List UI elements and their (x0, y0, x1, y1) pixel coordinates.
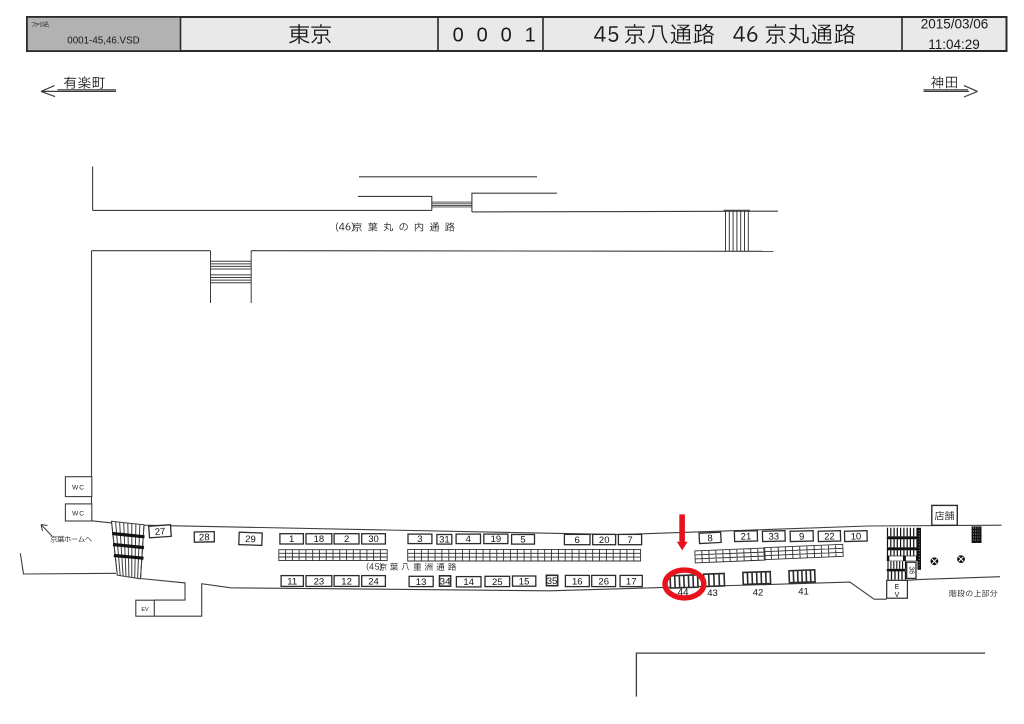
svg-text:43: 43 (707, 588, 718, 599)
svg-text:33: 33 (768, 531, 779, 542)
svg-text:EV: EV (141, 607, 149, 613)
svg-text:6: 6 (575, 535, 580, 546)
svg-text:31: 31 (439, 535, 450, 546)
svg-text:23: 23 (314, 576, 325, 587)
svg-text:20: 20 (599, 535, 610, 546)
svg-text:21: 21 (741, 531, 752, 542)
svg-text:11:04:29: 11:04:29 (928, 37, 980, 52)
svg-text:12: 12 (341, 576, 352, 587)
svg-text:1: 1 (289, 534, 294, 545)
svg-text:9: 9 (799, 531, 805, 542)
svg-text:2015/03/06: 2015/03/06 (921, 17, 989, 32)
svg-text:26: 26 (598, 576, 609, 587)
svg-text:10: 10 (850, 531, 861, 542)
svg-text:11: 11 (287, 576, 297, 587)
svg-text:27: 27 (154, 526, 165, 538)
svg-text:18: 18 (314, 534, 325, 545)
svg-text:15: 15 (519, 577, 530, 588)
svg-text:8: 8 (707, 533, 713, 544)
svg-text:25: 25 (492, 577, 503, 588)
svg-text:29: 29 (245, 534, 256, 545)
svg-text:7: 7 (627, 535, 632, 546)
svg-text:WC: WC (72, 511, 85, 518)
svg-text:35: 35 (547, 576, 558, 587)
svg-text:V: V (895, 592, 900, 599)
svg-text:0001-45,46.VSD: 0001-45,46.VSD (67, 36, 139, 47)
svg-text:E: E (895, 584, 900, 591)
svg-text:17: 17 (626, 576, 637, 587)
svg-text:30: 30 (368, 534, 379, 545)
svg-text:2: 2 (344, 534, 349, 545)
svg-text:0001: 0001 (453, 24, 549, 46)
svg-text:5: 5 (520, 535, 525, 546)
svg-text:22: 22 (824, 531, 835, 542)
svg-text:3: 3 (417, 534, 422, 545)
svg-text:13: 13 (416, 577, 427, 588)
svg-text:42: 42 (753, 588, 764, 599)
svg-text:16: 16 (572, 576, 583, 587)
svg-text:41: 41 (798, 587, 809, 598)
svg-text:14: 14 (463, 577, 474, 588)
svg-text:36: 36 (907, 566, 914, 574)
svg-text:WC: WC (72, 485, 85, 492)
svg-text:28: 28 (199, 532, 210, 543)
svg-text:24: 24 (368, 576, 379, 587)
svg-text:19: 19 (491, 534, 502, 545)
svg-text:4: 4 (466, 534, 471, 545)
svg-text:34: 34 (440, 576, 451, 587)
